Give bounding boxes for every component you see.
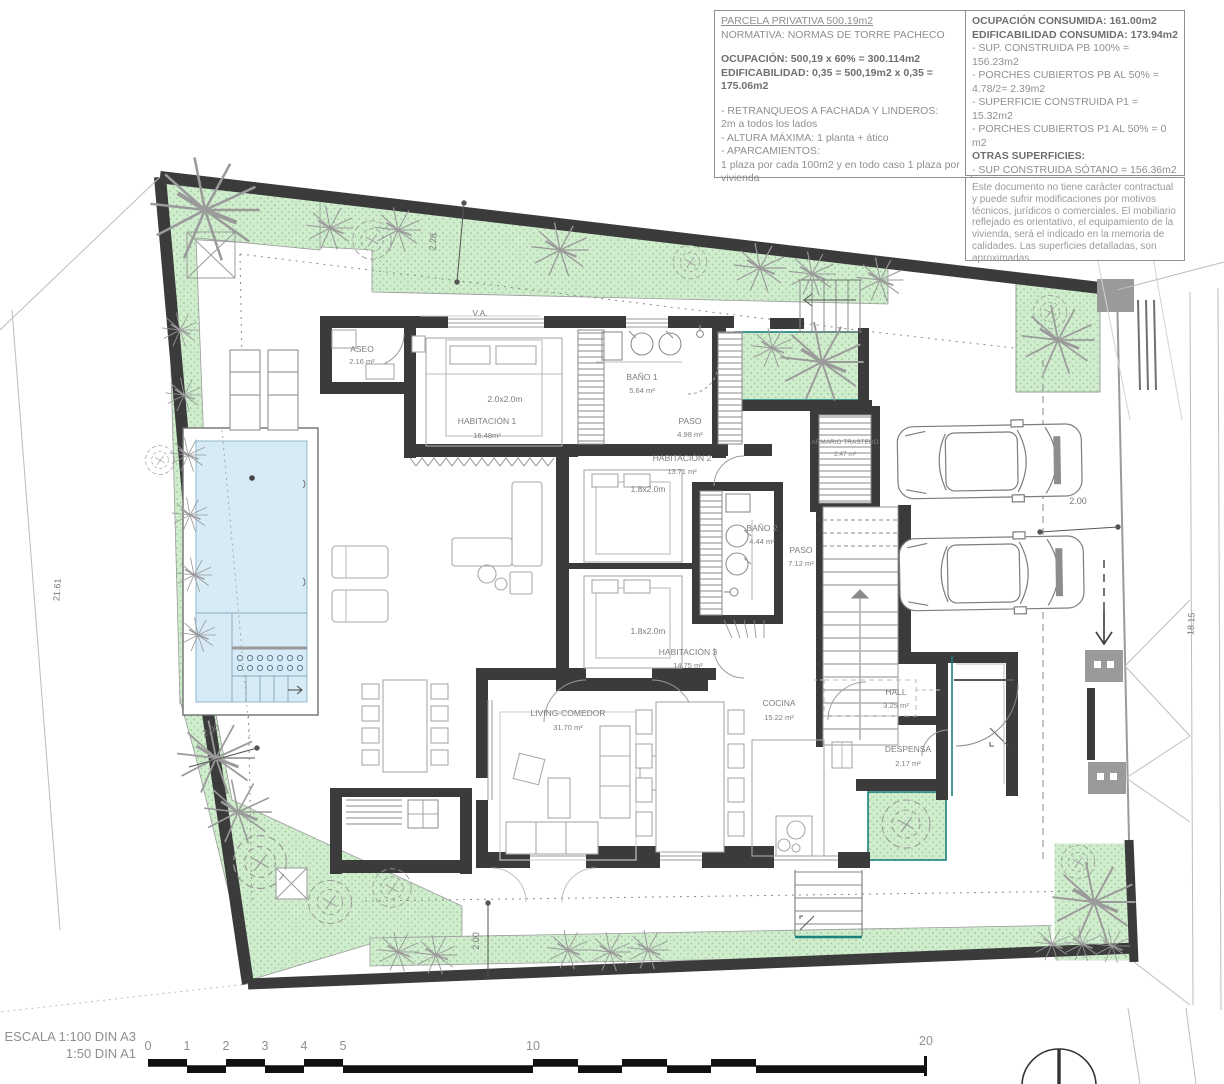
room-area-paso2: 7.12 m² xyxy=(788,559,814,568)
parcela-aparcamientos-value: 1 plaza por cada 100m2 y en todo caso 1 … xyxy=(721,159,965,186)
scale-line2: 1:50 DIN A1 xyxy=(0,1045,136,1062)
consumos-ocupacion: OCUPACIÓN CONSUMIDA: 161.00m2 xyxy=(972,15,1178,29)
bed-hab1 xyxy=(412,336,562,446)
scale-tick-10: 10 xyxy=(526,1039,540,1053)
dim-bottom: 2.00 xyxy=(471,932,481,950)
room-label-hall: HALL xyxy=(885,687,907,697)
room-label-paso2: PASO xyxy=(790,545,813,555)
dim-top: 2.28 xyxy=(428,233,439,251)
room-area-hab2: 13.71 m² xyxy=(667,467,697,476)
room-area-living: 31.70 m² xyxy=(553,723,583,732)
scale-tick-0: 0 xyxy=(145,1039,152,1053)
scale-line1: ESCALA 1:100 DIN A3 xyxy=(0,1028,136,1045)
bed3-size: 1.8x2.0m xyxy=(631,626,666,636)
room-label-paso1: PASO xyxy=(679,416,702,426)
bed1-size: 2.0x2.0m xyxy=(488,394,523,404)
parcela-altura: - ALTURA MÁXIMA: 1 planta + ático xyxy=(721,132,965,146)
dim-right: 18.15 xyxy=(1185,612,1196,635)
room-area-aseo: 2.16 m² xyxy=(349,357,375,366)
scale-tick-2: 2 xyxy=(223,1039,230,1053)
car-2 xyxy=(899,531,1084,616)
room-area-paso1: 4.98 m² xyxy=(677,430,703,439)
parcela-retranqueos-label: - RETRANQUEOS A FACHADA Y LINDEROS: xyxy=(721,105,965,119)
room-area-armario: 2.47 m² xyxy=(834,451,857,458)
room-area-hall: 3.25 m² xyxy=(883,701,909,710)
scale-text: ESCALA 1:100 DIN A3 1:50 DIN A1 xyxy=(0,1028,136,1062)
scale-tick-20: 20 xyxy=(919,1034,933,1048)
consumos-porches-p1: - PORCHES CUBIERTOS P1 AL 50% = 0 m2 xyxy=(972,123,1178,150)
parcela-edificabilidad: EDIFICABILIDAD: 0,35 = 500,19m2 x 0,35 =… xyxy=(721,67,965,94)
room-label-living: LIVING-COMEDOR xyxy=(530,708,605,718)
bed2-size: 1.8x2.0m xyxy=(631,484,666,494)
room-area-bano2: 4.44 m² xyxy=(749,537,775,546)
consumos-porches-pb1: - PORCHES CUBIERTOS PB AL 50% = xyxy=(972,69,1178,83)
room-label-hab1: HABITACIÓN 1 xyxy=(458,416,517,426)
room-label-cocina: COCINA xyxy=(762,698,795,708)
room-label-hab3: HABITACIÓN 3 xyxy=(659,647,718,657)
disclaimer-text: Este documento no tiene carácter contrac… xyxy=(972,182,1176,264)
consumos-edificabilidad: EDIFICABILIDAD CONSUMIDA: 173.94m2 xyxy=(972,29,1178,43)
room-label-despensa: DESPENSA xyxy=(885,744,932,754)
north-arrow xyxy=(1022,1049,1096,1084)
consumos-sup-p1: - SUPERFICIE CONSTRUIDA P1 = 15.32m2 xyxy=(972,96,1178,123)
dim-left: 21.61 xyxy=(51,578,63,601)
consumos-otras: OTRAS SUPERFICIES: xyxy=(972,150,1178,164)
room-area-despensa: 2.17 m² xyxy=(895,759,921,768)
room-area-hab1: 16.48m² xyxy=(473,431,501,440)
parcela-info-panel: PARCELA PRIVATIVA 500.19m2 NORMATIVA: NO… xyxy=(714,10,972,178)
consumos-info-panel: OCUPACIÓN CONSUMIDA: 161.00m2 EDIFICABIL… xyxy=(965,10,1185,176)
room-area-bano1: 5.64 m² xyxy=(629,386,655,395)
dim-garage: 2.00 xyxy=(1069,496,1087,506)
consumos-sotano: - SUP CONSTRUIDA SÓTANO = 156.36m2 xyxy=(972,164,1178,178)
label-va: V.A. xyxy=(472,308,487,318)
room-label-hab2: HABITACIÓN 2 xyxy=(653,453,712,463)
parcela-normativa: NORMATIVA: NORMAS DE TORRE PACHECO xyxy=(721,29,965,43)
cars xyxy=(897,419,1084,616)
parcela-retranqueos-value: 2m a todos los lados xyxy=(721,118,965,132)
sun-loungers xyxy=(230,350,298,430)
parcela-ocupacion: OCUPACIÓN: 500,19 x 60% = 300.114m2 xyxy=(721,53,965,67)
parcela-aparcamientos-label: - APARCAMIENTOS: xyxy=(721,145,965,159)
room-label-aseo: ASEO xyxy=(350,344,374,354)
consumos-porches-pb2: 4.78/2= 2.39m2 xyxy=(972,83,1178,97)
car-1 xyxy=(897,419,1082,504)
room-area-cocina: 15.22 m² xyxy=(764,713,794,722)
room-label-bano1: BAÑO 1 xyxy=(626,372,657,382)
scale-tick-1: 1 xyxy=(184,1039,191,1053)
pool xyxy=(183,428,318,740)
dining-table xyxy=(362,680,448,772)
scale-tick-4: 4 xyxy=(301,1039,308,1053)
scale-tick-3: 3 xyxy=(262,1039,269,1053)
scale-bar-blocks xyxy=(148,1056,927,1076)
parcela-title: PARCELA PRIVATIVA 500.19m2 xyxy=(721,15,965,29)
room-area-hab3: 14.75 m² xyxy=(673,661,703,670)
consumos-sup-pb: - SUP. CONSTRUIDA PB 100% = 156.23m2 xyxy=(972,42,1178,69)
room-label-armario: ARMARIO TRASTERO xyxy=(811,439,878,446)
floor-plan-sheet: ASEO 2.16 m² V.A. HABITACIÓN 1 16.48m² 2… xyxy=(0,0,1224,1084)
room-label-bano2: BAÑO 2 xyxy=(746,523,777,533)
disclaimer-panel: Este documento no tiene carácter contrac… xyxy=(965,177,1185,261)
scale-bar: 0 1 2 3 4 5 10 20 xyxy=(145,1034,933,1076)
scale-tick-5: 5 xyxy=(340,1039,347,1053)
